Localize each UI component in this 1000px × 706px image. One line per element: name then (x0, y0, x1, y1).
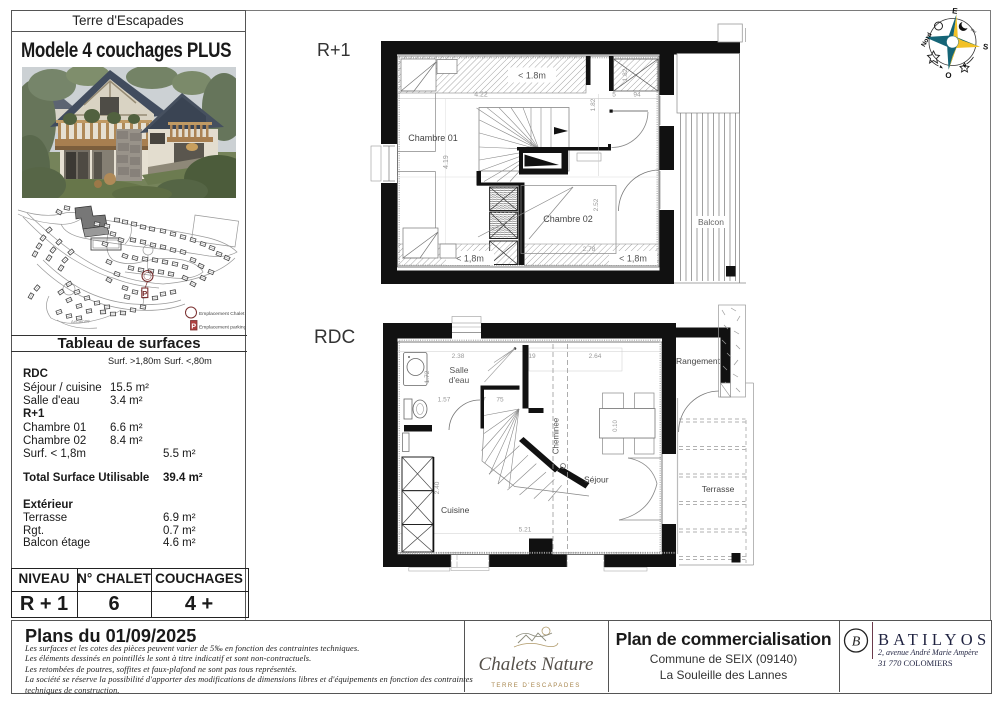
svg-text:Salle: Salle (450, 365, 469, 375)
svg-text:Rangement: Rangement (676, 356, 721, 366)
svg-text:1.82: 1.82 (622, 68, 629, 81)
svg-text:1.72: 1.72 (424, 370, 431, 383)
svg-text:Emplacement parking: Emplacement parking (199, 325, 245, 331)
svg-text:Chambre 01: Chambre 01 (408, 133, 458, 143)
svg-text:4.22: 4.22 (474, 92, 488, 99)
svg-text:Mer: Mer (970, 28, 978, 35)
svg-text:1.57: 1.57 (438, 397, 451, 404)
svg-text:Terrasse: Terrasse (702, 484, 735, 494)
svg-text:< 1,8m: < 1,8m (456, 254, 484, 264)
svg-text:1.82: 1.82 (590, 98, 597, 111)
svg-text:2.52: 2.52 (593, 198, 600, 211)
svg-text:2.64: 2.64 (589, 353, 602, 360)
svg-text:Cheminée: Cheminée (552, 417, 561, 454)
svg-text:< 1,8m: < 1,8m (619, 254, 647, 264)
svg-text:Chambre 02: Chambre 02 (543, 214, 593, 224)
svg-text:< 1.8m: < 1.8m (518, 71, 546, 81)
svg-text:S: S (982, 42, 989, 52)
svg-text:P: P (142, 289, 147, 298)
svg-text:2.38: 2.38 (452, 353, 465, 360)
svg-text:5: 5 (612, 92, 616, 99)
svg-text:2.40: 2.40 (434, 481, 441, 494)
svg-text:d'eau: d'eau (449, 375, 470, 385)
svg-text:B: B (852, 635, 861, 650)
svg-text:O: O (945, 71, 952, 81)
svg-text:E: E (952, 8, 959, 16)
svg-text:Séjour: Séjour (584, 475, 609, 485)
svg-text:Balcon: Balcon (698, 217, 724, 227)
svg-text:P: P (191, 323, 196, 330)
svg-text:4.19: 4.19 (443, 155, 450, 169)
svg-text:94: 94 (633, 92, 641, 99)
svg-text:0.10: 0.10 (613, 420, 619, 432)
svg-text:Emplacement Chalet: Emplacement Chalet (199, 311, 245, 317)
svg-text:5.21: 5.21 (519, 527, 532, 534)
svg-text:Ancienne: Ancienne (71, 318, 91, 324)
svg-text:Cuisine: Cuisine (441, 505, 470, 515)
svg-text:19: 19 (528, 353, 536, 360)
svg-text:2.78: 2.78 (583, 246, 596, 253)
svg-text:75: 75 (496, 397, 504, 404)
